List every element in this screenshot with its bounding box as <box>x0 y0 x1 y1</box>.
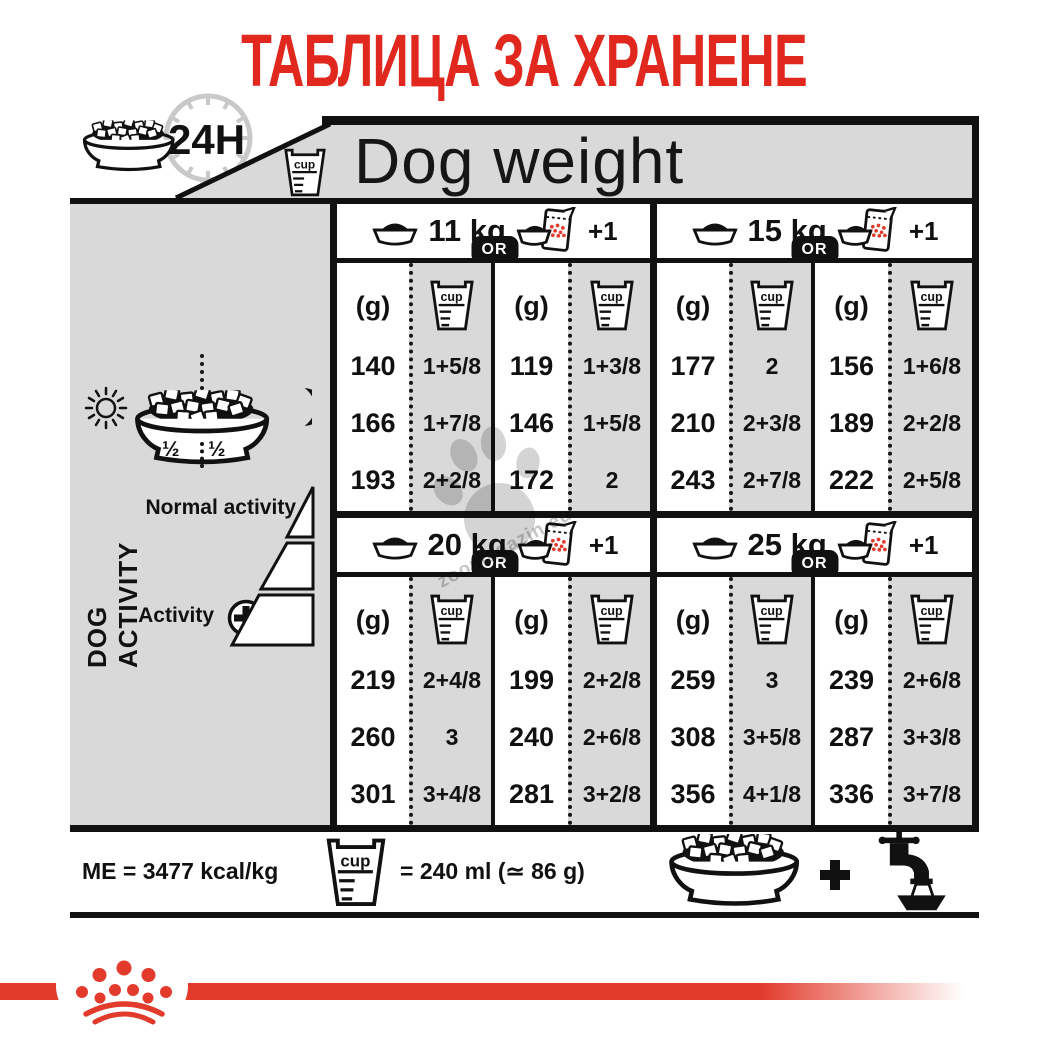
cup-column: 1+5/81+7/82+2/8 <box>409 263 491 511</box>
bowl-plus-pouch-icon <box>836 207 900 255</box>
cell-value: 166 <box>337 408 409 438</box>
feeding-table-panel: ТАБЛИЦА ЗА ХРАНЕНЕ 24H Dog weight <box>0 0 1049 1049</box>
plus-one-label: +1 <box>909 216 939 247</box>
bowl-plus-pouch-icon <box>515 207 579 255</box>
sun-icon <box>82 384 130 432</box>
cell-value: 1+7/8 <box>413 408 491 438</box>
cup-icon <box>430 594 474 646</box>
cell-value: 239 <box>815 665 888 695</box>
water-tap-icon <box>856 832 946 914</box>
weight-group-header: 15 kg +1 OR <box>657 204 972 263</box>
cell-value: 156 <box>815 351 888 381</box>
cell-value: 146 <box>495 408 568 438</box>
weight-group-15kg: 15 kg +1 OR (g) 177210243 22+3/82+7/8 (g… <box>657 204 972 511</box>
cell-value: 2+7/8 <box>733 465 811 495</box>
grams-header: (g) <box>657 263 729 349</box>
weight-group-body: (g) 259308356 33+5/84+1/8 (g) 239287336 … <box>657 577 972 825</box>
cell-value: 3 <box>413 722 491 752</box>
activity-label: Activity <box>90 604 214 628</box>
cell-value: 243 <box>657 465 729 495</box>
weight-group-11kg: 11 kg +1 OR (g) 140166193 1+5/81+7/82+2/… <box>337 204 652 511</box>
cell-value: 3+2/8 <box>572 779 652 809</box>
cell-value: 1+5/8 <box>413 351 491 381</box>
cell-value: 260 <box>337 722 409 752</box>
plus-icon <box>818 858 852 892</box>
plus-one-label: +1 <box>909 530 939 561</box>
cell-value: 3+4/8 <box>413 779 491 809</box>
grams-header: (g) <box>815 577 888 663</box>
cell-value: 2+5/8 <box>892 465 972 495</box>
cup-column-mix: 1+3/81+5/82 <box>568 263 652 511</box>
dry-bowl-icon <box>371 530 419 560</box>
cup-icon <box>910 280 954 332</box>
cup-equivalence-note: = 240 ml (≃ 86 g) <box>400 858 585 885</box>
grams-header: (g) <box>337 577 409 663</box>
grams-header: (g) <box>657 577 729 663</box>
half-split-dotted-line-inner <box>200 442 204 468</box>
grams-column: (g) 219260301 <box>337 577 409 825</box>
cell-value: 140 <box>337 351 409 381</box>
cell-value: 2+2/8 <box>572 665 652 695</box>
cell-value: 3+7/8 <box>892 779 972 809</box>
cell-value: 301 <box>337 779 409 809</box>
or-badge: OR <box>791 550 838 577</box>
cell-value: 3 <box>733 665 811 695</box>
cell-value: 281 <box>495 779 568 809</box>
weight-group-header: 25 kg +1 OR <box>657 518 972 577</box>
cell-value: 199 <box>495 665 568 695</box>
cell-value: 119 <box>495 351 568 381</box>
cell-value: 1+6/8 <box>892 351 972 381</box>
half-half-bowl-icon <box>128 390 280 474</box>
cell-value: 2+6/8 <box>572 722 652 752</box>
divider-bottom <box>70 912 979 918</box>
or-badge: OR <box>471 236 518 263</box>
grams-column-mix: (g) 199240281 <box>491 577 568 825</box>
cup-icon-large <box>325 838 387 908</box>
bowl-plus-pouch-icon <box>836 521 900 569</box>
dry-bowl-icon <box>691 530 739 560</box>
cell-value: 3+3/8 <box>892 722 972 752</box>
half-portion-right: ½ <box>208 438 226 462</box>
half-portion-left: ½ <box>162 438 180 462</box>
cell-value: 2 <box>572 465 652 495</box>
cell-value: 2+2/8 <box>413 465 491 495</box>
cell-value: 1+3/8 <box>572 351 652 381</box>
cell-value: 222 <box>815 465 888 495</box>
kibble-bowl-icon <box>662 834 810 915</box>
cell-value: 189 <box>815 408 888 438</box>
cell-value: 2+2/8 <box>892 408 972 438</box>
cell-value: 4+1/8 <box>733 779 811 809</box>
cup-column-mix: 1+6/82+2/82+5/8 <box>888 263 972 511</box>
cup-column-mix: 2+2/82+6/83+2/8 <box>568 577 652 825</box>
cup-column-mix: 2+6/83+3/83+7/8 <box>888 577 972 825</box>
grams-header: (g) <box>495 263 568 349</box>
cup-icon <box>750 594 794 646</box>
cup-icon <box>590 594 634 646</box>
weight-group-body: (g) 140166193 1+5/81+7/82+2/8 (g) 119146… <box>337 263 652 511</box>
cell-value: 193 <box>337 465 409 495</box>
royal-canin-crown-logo <box>64 952 184 1026</box>
weight-group-header: 11 kg +1 OR <box>337 204 652 263</box>
dog-weight-title: Dog weight <box>354 124 684 198</box>
cup-icon <box>750 280 794 332</box>
cell-value: 177 <box>657 351 729 381</box>
cell-value: 2+3/8 <box>733 408 811 438</box>
plus-one-label: +1 <box>589 530 619 561</box>
metabolizable-energy-note: ME = 3477 kcal/kg <box>82 858 278 885</box>
cell-value: 287 <box>815 722 888 752</box>
grams-column-mix: (g) 239287336 <box>811 577 888 825</box>
measuring-cup-icon <box>284 148 326 198</box>
grams-column: (g) 177210243 <box>657 263 729 511</box>
dry-bowl-icon <box>691 216 739 246</box>
plus-one-label: +1 <box>588 216 618 247</box>
cell-value: 336 <box>815 779 888 809</box>
activity-ramp-icon <box>222 480 322 652</box>
weight-group-25kg: 25 kg +1 OR (g) 259308356 33+5/84+1/8 (g… <box>657 518 972 825</box>
grams-column-mix: (g) 156189222 <box>811 263 888 511</box>
grams-column: (g) 140166193 <box>337 263 409 511</box>
cell-value: 2 <box>733 351 811 381</box>
weight-group-body: (g) 219260301 2+4/833+4/8 (g) 199240281 … <box>337 577 652 825</box>
cup-column: 2+4/833+4/8 <box>409 577 491 825</box>
cell-value: 240 <box>495 722 568 752</box>
cup-column: 22+3/82+7/8 <box>729 263 811 511</box>
grams-header: (g) <box>815 263 888 349</box>
cell-value: 2+6/8 <box>892 665 972 695</box>
cell-value: 308 <box>657 722 729 752</box>
cup-icon <box>590 280 634 332</box>
dry-bowl-icon <box>371 216 419 246</box>
table-divider-horizontal <box>330 511 979 518</box>
cell-value: 210 <box>657 408 729 438</box>
cell-value: 172 <box>495 465 568 495</box>
footer-info: ME = 3477 kcal/kg = 240 ml (≃ 86 g) <box>70 832 979 912</box>
cell-value: 2+4/8 <box>413 665 491 695</box>
grams-column: (g) 259308356 <box>657 577 729 825</box>
cup-icon <box>430 280 474 332</box>
moon-icon <box>278 386 312 428</box>
grams-column-mix: (g) 119146172 <box>491 263 568 511</box>
cell-value: 356 <box>657 779 729 809</box>
or-badge: OR <box>791 236 838 263</box>
cell-value: 1+5/8 <box>572 408 652 438</box>
cell-value: 259 <box>657 665 729 695</box>
cell-value: 3+5/8 <box>733 722 811 752</box>
grams-header: (g) <box>337 263 409 349</box>
cup-column: 33+5/84+1/8 <box>729 577 811 825</box>
dog-activity-sidebar: ½ ½ DOG ACTIVITY Normal activity Activit… <box>70 204 330 825</box>
weight-group-body: (g) 177210243 22+3/82+7/8 (g) 156189222 … <box>657 263 972 511</box>
cup-icon <box>910 594 954 646</box>
grams-header: (g) <box>495 577 568 663</box>
cell-value: 219 <box>337 665 409 695</box>
divider-above-footer <box>70 825 979 832</box>
